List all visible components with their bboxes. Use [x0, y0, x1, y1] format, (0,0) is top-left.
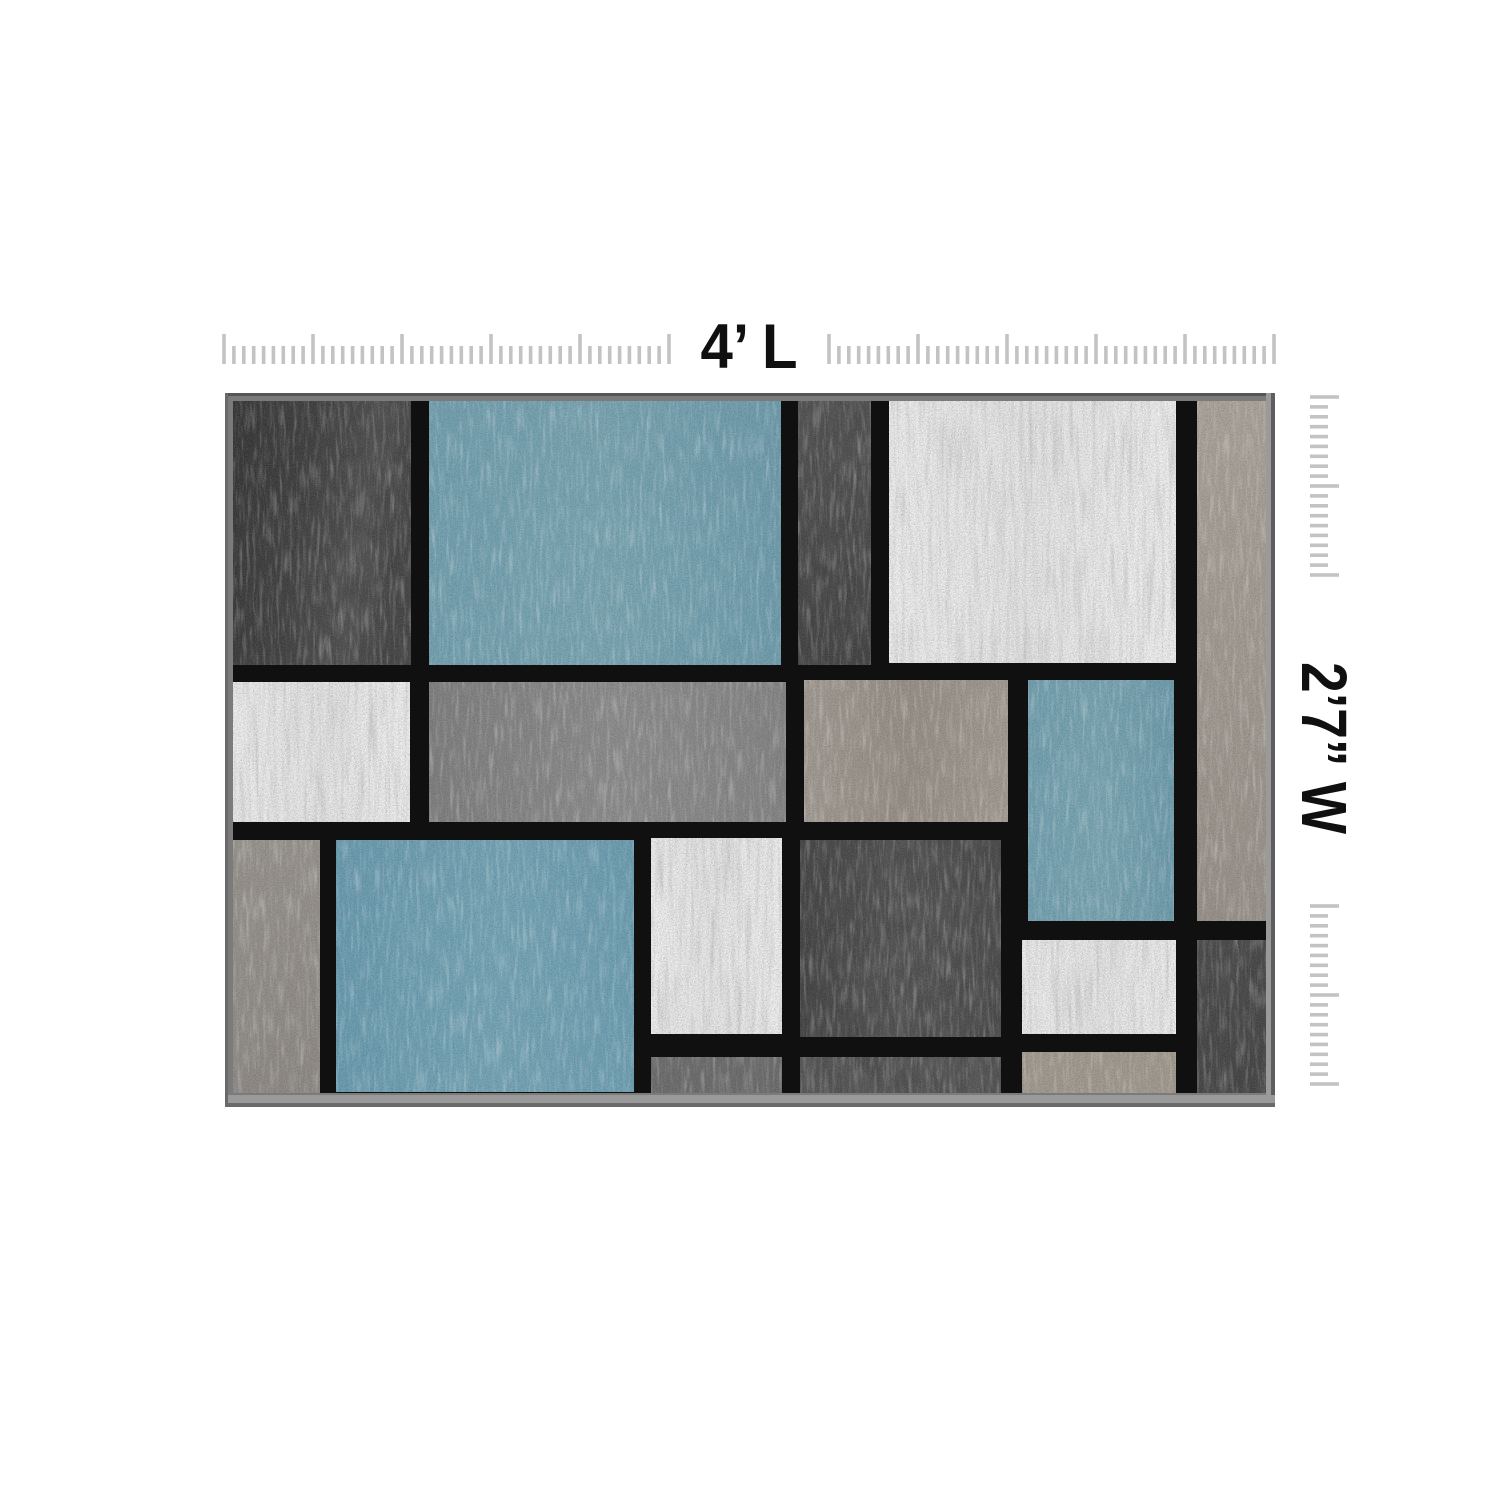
- svg-text:2’7” W: 2’7” W: [1288, 662, 1360, 835]
- svg-text:4’ L: 4’ L: [701, 312, 798, 382]
